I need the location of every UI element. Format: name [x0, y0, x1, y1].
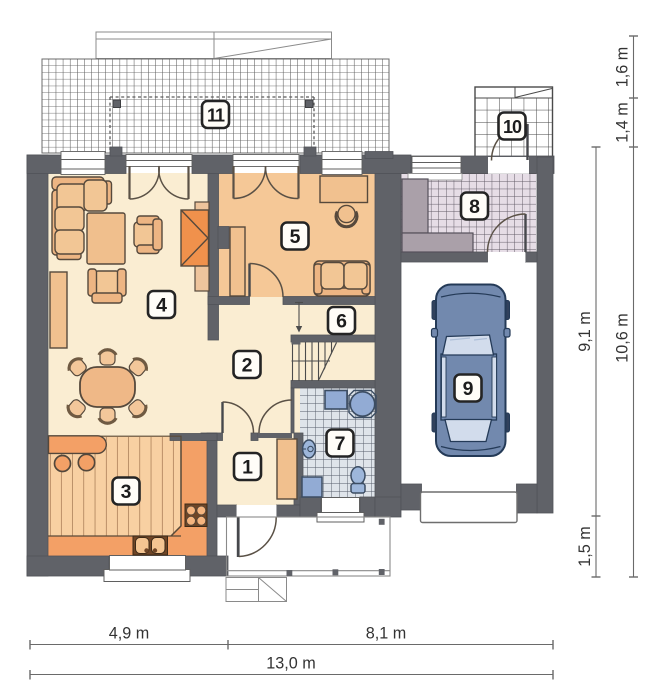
svg-text:11: 11: [207, 105, 225, 125]
svg-text:7: 7: [335, 433, 346, 455]
svg-text:3: 3: [121, 481, 132, 503]
svg-text:13,0 m: 13,0 m: [266, 655, 316, 673]
svg-text:5: 5: [290, 226, 301, 248]
svg-text:1,5 m: 1,5 m: [576, 526, 594, 567]
svg-text:8,1 m: 8,1 m: [366, 625, 407, 643]
svg-text:4: 4: [156, 294, 167, 316]
svg-text:10,6 m: 10,6 m: [614, 313, 632, 363]
svg-text:1: 1: [242, 456, 253, 478]
svg-text:1,4 m: 1,4 m: [614, 102, 632, 143]
svg-text:10: 10: [503, 117, 522, 137]
svg-text:8: 8: [469, 196, 480, 218]
svg-text:9,1 m: 9,1 m: [576, 311, 594, 352]
svg-text:2: 2: [242, 354, 253, 376]
svg-text:9: 9: [463, 378, 474, 400]
svg-text:1,6 m: 1,6 m: [614, 47, 632, 88]
svg-text:6: 6: [336, 310, 347, 332]
svg-text:4,9 m: 4,9 m: [109, 625, 150, 643]
